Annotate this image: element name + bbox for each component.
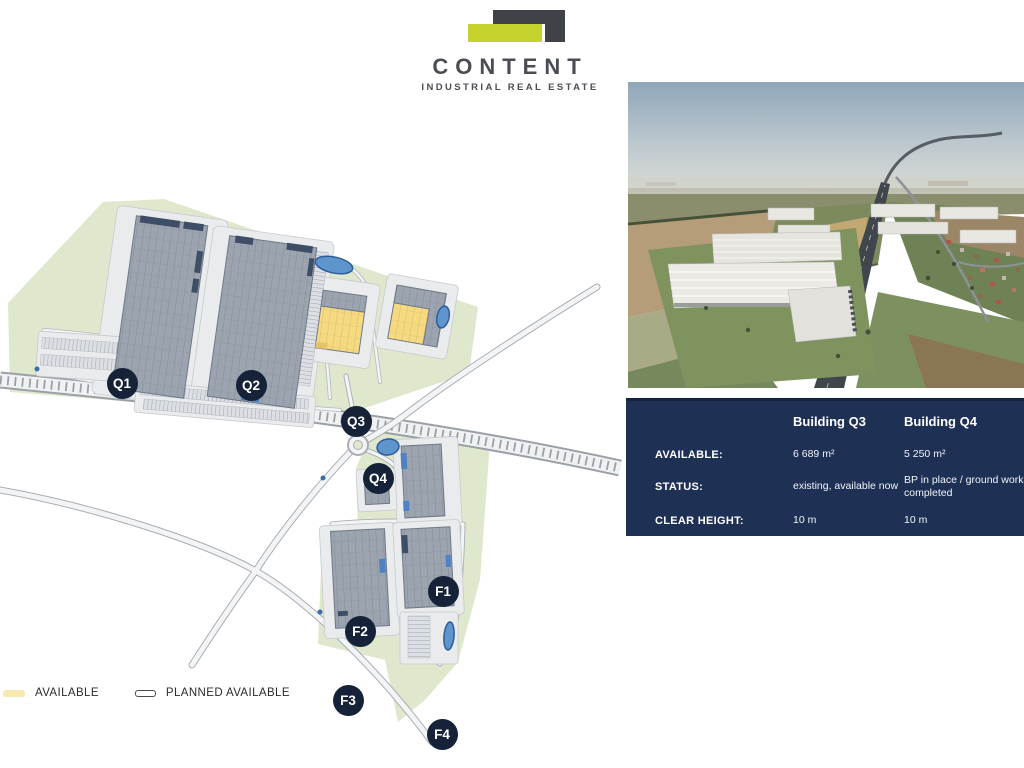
logo-subtitle: INDUSTRIAL REAL ESTATE (420, 82, 600, 93)
status-q3: existing, available now (793, 480, 904, 492)
row-label-available: AVAILABLE: (626, 449, 793, 461)
specs-table: Building Q3 Building Q4 AVAILABLE: 6 689… (626, 398, 1024, 536)
building-Q3 (315, 290, 367, 354)
building-F1 (400, 444, 445, 518)
legend-item-planned: PLANNED AVAILABLE (135, 687, 290, 699)
column-header-q3: Building Q3 (793, 414, 904, 429)
clear-height-q3: 10 m (793, 514, 904, 526)
map-legend: AVAILABLEPLANNED AVAILABLE (3, 687, 326, 699)
planned-swatch-icon (135, 690, 156, 697)
photo-sky (628, 82, 1024, 197)
row-label-status: STATUS: (626, 481, 793, 493)
row-label-clear-height: CLEAR HEIGHT: (626, 515, 793, 527)
site-plan-map (0, 150, 622, 750)
legend-label: PLANNED AVAILABLE (166, 687, 290, 699)
brochure-page: CONTENT INDUSTRIAL REAL ESTATE (0, 0, 1024, 768)
legend-label: AVAILABLE (35, 687, 99, 699)
company-logo: CONTENT INDUSTRIAL REAL ESTATE (420, 8, 600, 93)
available-q3: 6 689 m² (793, 448, 904, 460)
column-header-q4: Building Q4 (904, 414, 1024, 429)
logo-mark-icon (440, 8, 580, 52)
building-F4 (401, 527, 454, 608)
logo-title: CONTENT (420, 54, 600, 80)
status-q4: BP in place / ground works completed (904, 474, 1024, 498)
clear-height-q4: 10 m (904, 514, 1024, 526)
building-F3 (331, 529, 390, 629)
building-F2 (364, 479, 389, 504)
aerial-photo (628, 82, 1024, 388)
available-q4: 5 250 m² (904, 448, 1024, 460)
available-swatch-icon (3, 690, 25, 697)
legend-item-available: AVAILABLE (3, 687, 99, 699)
roundabout (348, 435, 368, 455)
